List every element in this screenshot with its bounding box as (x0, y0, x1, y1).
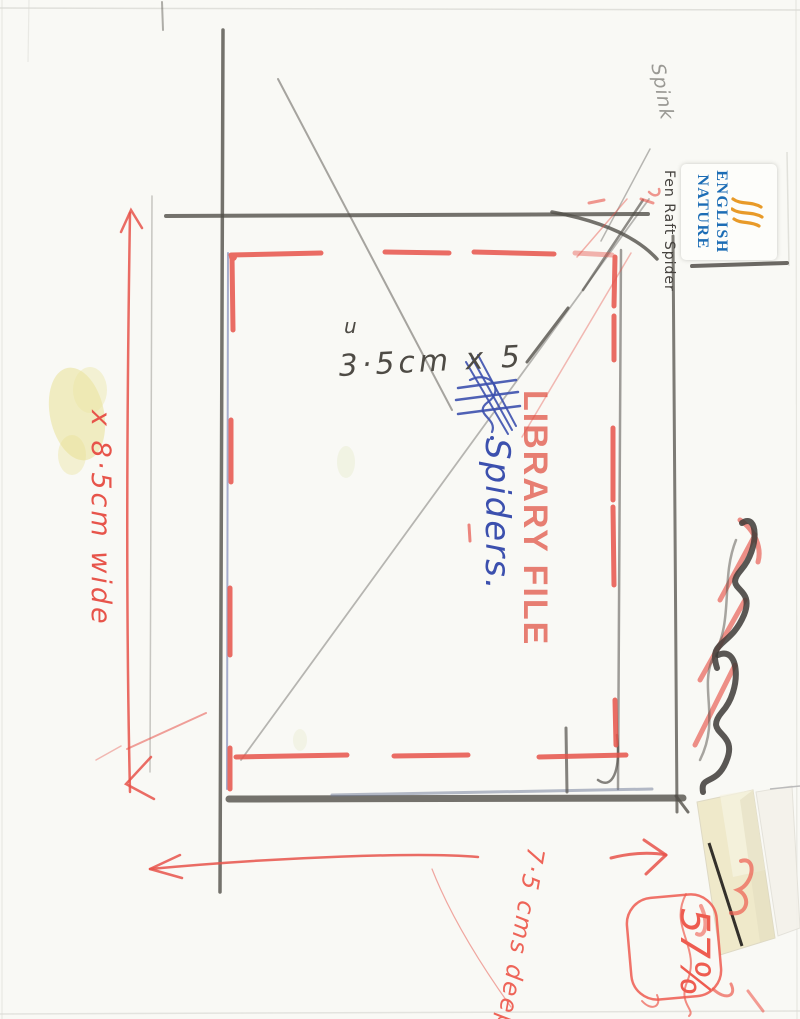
width-dimension-note: x 8·5cm wide (87, 410, 114, 627)
small-pencil-mark: u (344, 316, 357, 336)
english-nature-sticker: ENGLISH NATURE (681, 164, 777, 260)
page-edge-lines (0, 0, 800, 1019)
sticker-pencil-caption: Fen Raft Spider (662, 170, 676, 292)
red-faint-lines (96, 189, 659, 1007)
red-dimension-arrows (121, 210, 666, 878)
crop-marks-drawing (0, 0, 800, 1019)
flame-logo-icon (731, 191, 765, 233)
sticker-line2: NATURE (693, 174, 710, 249)
circled-number-note: 57% (674, 908, 714, 997)
pen-test-scribbles (695, 520, 759, 792)
sticker-line1: ENGLISH (712, 170, 729, 253)
red-crop-dashes (229, 252, 626, 789)
subject-note: Spiders. (480, 438, 514, 592)
photo-verso-scan: Spink u 3·5cm x 5 LIBRARY FILE Spiders. … (0, 0, 800, 1019)
